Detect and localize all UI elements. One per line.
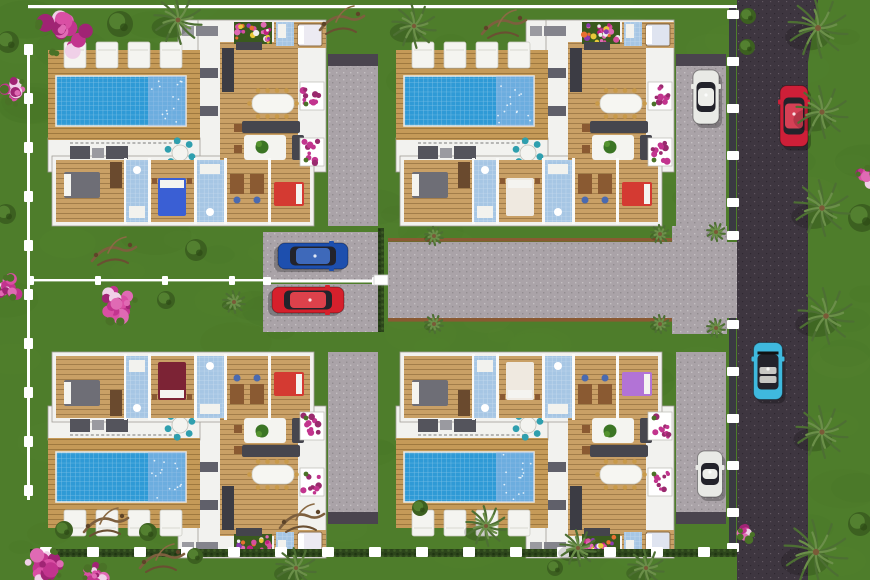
sun-lounger — [96, 42, 118, 68]
aerial-site-plan — [0, 0, 870, 580]
bush — [739, 39, 755, 55]
outdoor-sofa — [106, 419, 128, 432]
patio-chair — [522, 137, 529, 144]
garden-fence-mid — [28, 279, 263, 281]
patio-chair — [522, 434, 529, 441]
sun-lounger — [444, 510, 466, 536]
outdoor-sofa — [70, 146, 90, 159]
patio-chair — [534, 430, 541, 437]
patio-chair — [513, 146, 520, 153]
kitchen-counter — [222, 48, 234, 92]
patio-chair — [174, 137, 181, 144]
car-red-left-driveway — [268, 285, 344, 316]
bush — [185, 239, 207, 261]
dining-table — [252, 94, 294, 113]
patio-chair — [165, 146, 172, 153]
sun-lounger — [160, 42, 182, 68]
sun-lounger — [128, 42, 150, 68]
car-blue-left-driveway — [274, 241, 348, 272]
patio-chair — [174, 434, 181, 441]
patio-table — [172, 417, 188, 433]
perimeter-fence-top — [28, 5, 737, 8]
bush — [107, 11, 133, 37]
sun-lounger — [476, 42, 498, 68]
bush — [139, 523, 157, 541]
outdoor-sofa — [418, 146, 438, 159]
sofa — [590, 445, 648, 457]
outdoor-sofa — [454, 419, 476, 432]
patio-table — [520, 417, 536, 433]
kitchen-counter — [570, 486, 582, 530]
bush — [187, 548, 203, 564]
sun-lounger — [508, 510, 530, 536]
sofa — [242, 445, 300, 457]
bush — [157, 291, 175, 309]
car-cyan-convertible-road — [752, 343, 786, 404]
desk — [598, 384, 612, 404]
desk — [250, 174, 264, 194]
outdoor-sofa — [418, 419, 438, 432]
gate — [374, 275, 388, 285]
patio-chair — [165, 425, 172, 432]
desk — [598, 174, 612, 194]
patio-chair — [534, 141, 541, 148]
bush — [740, 8, 756, 24]
patio-table — [520, 145, 536, 161]
lane-divider-fence — [263, 280, 380, 283]
desk — [230, 174, 244, 194]
desk — [230, 384, 244, 404]
outdoor-sofa — [70, 419, 90, 432]
outdoor-sofa — [454, 146, 476, 159]
kitchen-counter — [222, 486, 234, 530]
dining-table — [252, 465, 294, 484]
patio-chair — [513, 425, 520, 432]
dining-table — [600, 94, 642, 113]
car-white-top-driveway — [691, 70, 722, 128]
bush — [55, 521, 73, 539]
site-plan-rendering — [0, 0, 870, 580]
dining-table — [600, 465, 642, 484]
desk — [578, 174, 592, 194]
outdoor-sofa — [106, 146, 128, 159]
car-white-bottom-driveway — [696, 451, 726, 501]
patio-chair — [186, 141, 193, 148]
patio-table — [172, 145, 188, 161]
patio-chair — [186, 430, 193, 437]
kitchen-counter — [570, 48, 582, 92]
bush — [547, 560, 563, 576]
sun-lounger — [508, 42, 530, 68]
sun-lounger — [160, 510, 182, 536]
sun-lounger — [444, 42, 466, 68]
bush — [412, 500, 428, 516]
sofa — [242, 121, 300, 133]
desk — [250, 384, 264, 404]
perimeter-fence-left — [27, 44, 30, 500]
desk — [578, 384, 592, 404]
sofa — [590, 121, 648, 133]
